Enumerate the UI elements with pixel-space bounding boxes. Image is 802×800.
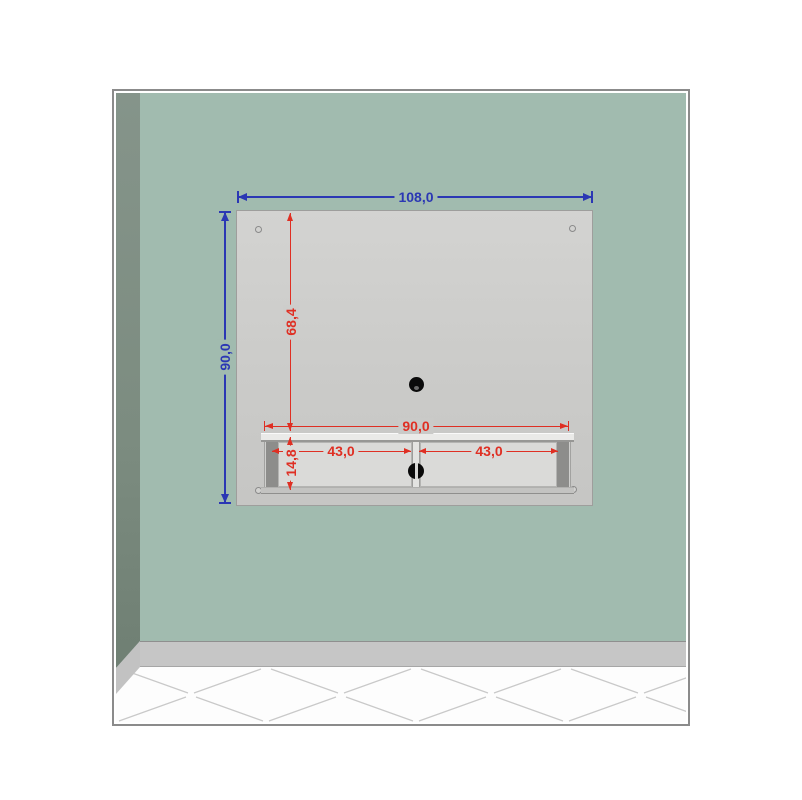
dim-hole-offset-label: 68,4 xyxy=(283,304,299,339)
rendered-image: 108,0 90,0 68,4 90,0 43,0 43,0 xyxy=(0,0,802,800)
dim-shelf-width-label: 90,0 xyxy=(398,418,433,434)
dim-right-door-label: 43,0 xyxy=(471,443,506,459)
dim-arrow-right-icon xyxy=(551,448,558,454)
shelf-right-side-panel xyxy=(557,442,569,487)
dim-arrow-left-icon xyxy=(265,423,273,429)
shelf-bottom-board xyxy=(261,487,574,494)
dim-left-door-label: 43,0 xyxy=(323,443,358,459)
cable-hole xyxy=(409,377,424,392)
dim-arrow-down-icon xyxy=(287,423,293,431)
shelf-top-board xyxy=(261,433,574,442)
dim-arrow-left-icon xyxy=(238,193,247,201)
floor-chevron-pattern xyxy=(116,667,686,722)
dim-arrow-right-icon xyxy=(404,448,411,454)
left-side-wall xyxy=(116,93,140,668)
door-handle-gap xyxy=(415,463,418,479)
room-scene: 108,0 90,0 68,4 90,0 43,0 43,0 xyxy=(116,93,686,722)
dim-arrow-up-icon xyxy=(287,213,293,221)
dim-arrow-up-icon xyxy=(221,212,229,221)
baseboard xyxy=(140,641,686,667)
dim-arrow-right-icon xyxy=(583,193,592,201)
dim-arrow-down-icon xyxy=(287,482,293,490)
dim-tick xyxy=(568,421,569,431)
dim-panel-height-label: 90,0 xyxy=(217,339,233,374)
dim-arrow-left-icon xyxy=(272,448,279,454)
dim-arrow-left-icon xyxy=(419,448,426,454)
mounting-screw-top-left xyxy=(255,226,262,233)
dim-arrow-right-icon xyxy=(560,423,568,429)
dim-panel-width-label: 108,0 xyxy=(394,189,437,205)
mounting-screw-top-right xyxy=(569,225,576,232)
dim-arrow-up-icon xyxy=(287,437,293,445)
dim-shelf-height-label: 14,8 xyxy=(283,445,299,480)
dim-arrow-down-icon xyxy=(221,494,229,503)
